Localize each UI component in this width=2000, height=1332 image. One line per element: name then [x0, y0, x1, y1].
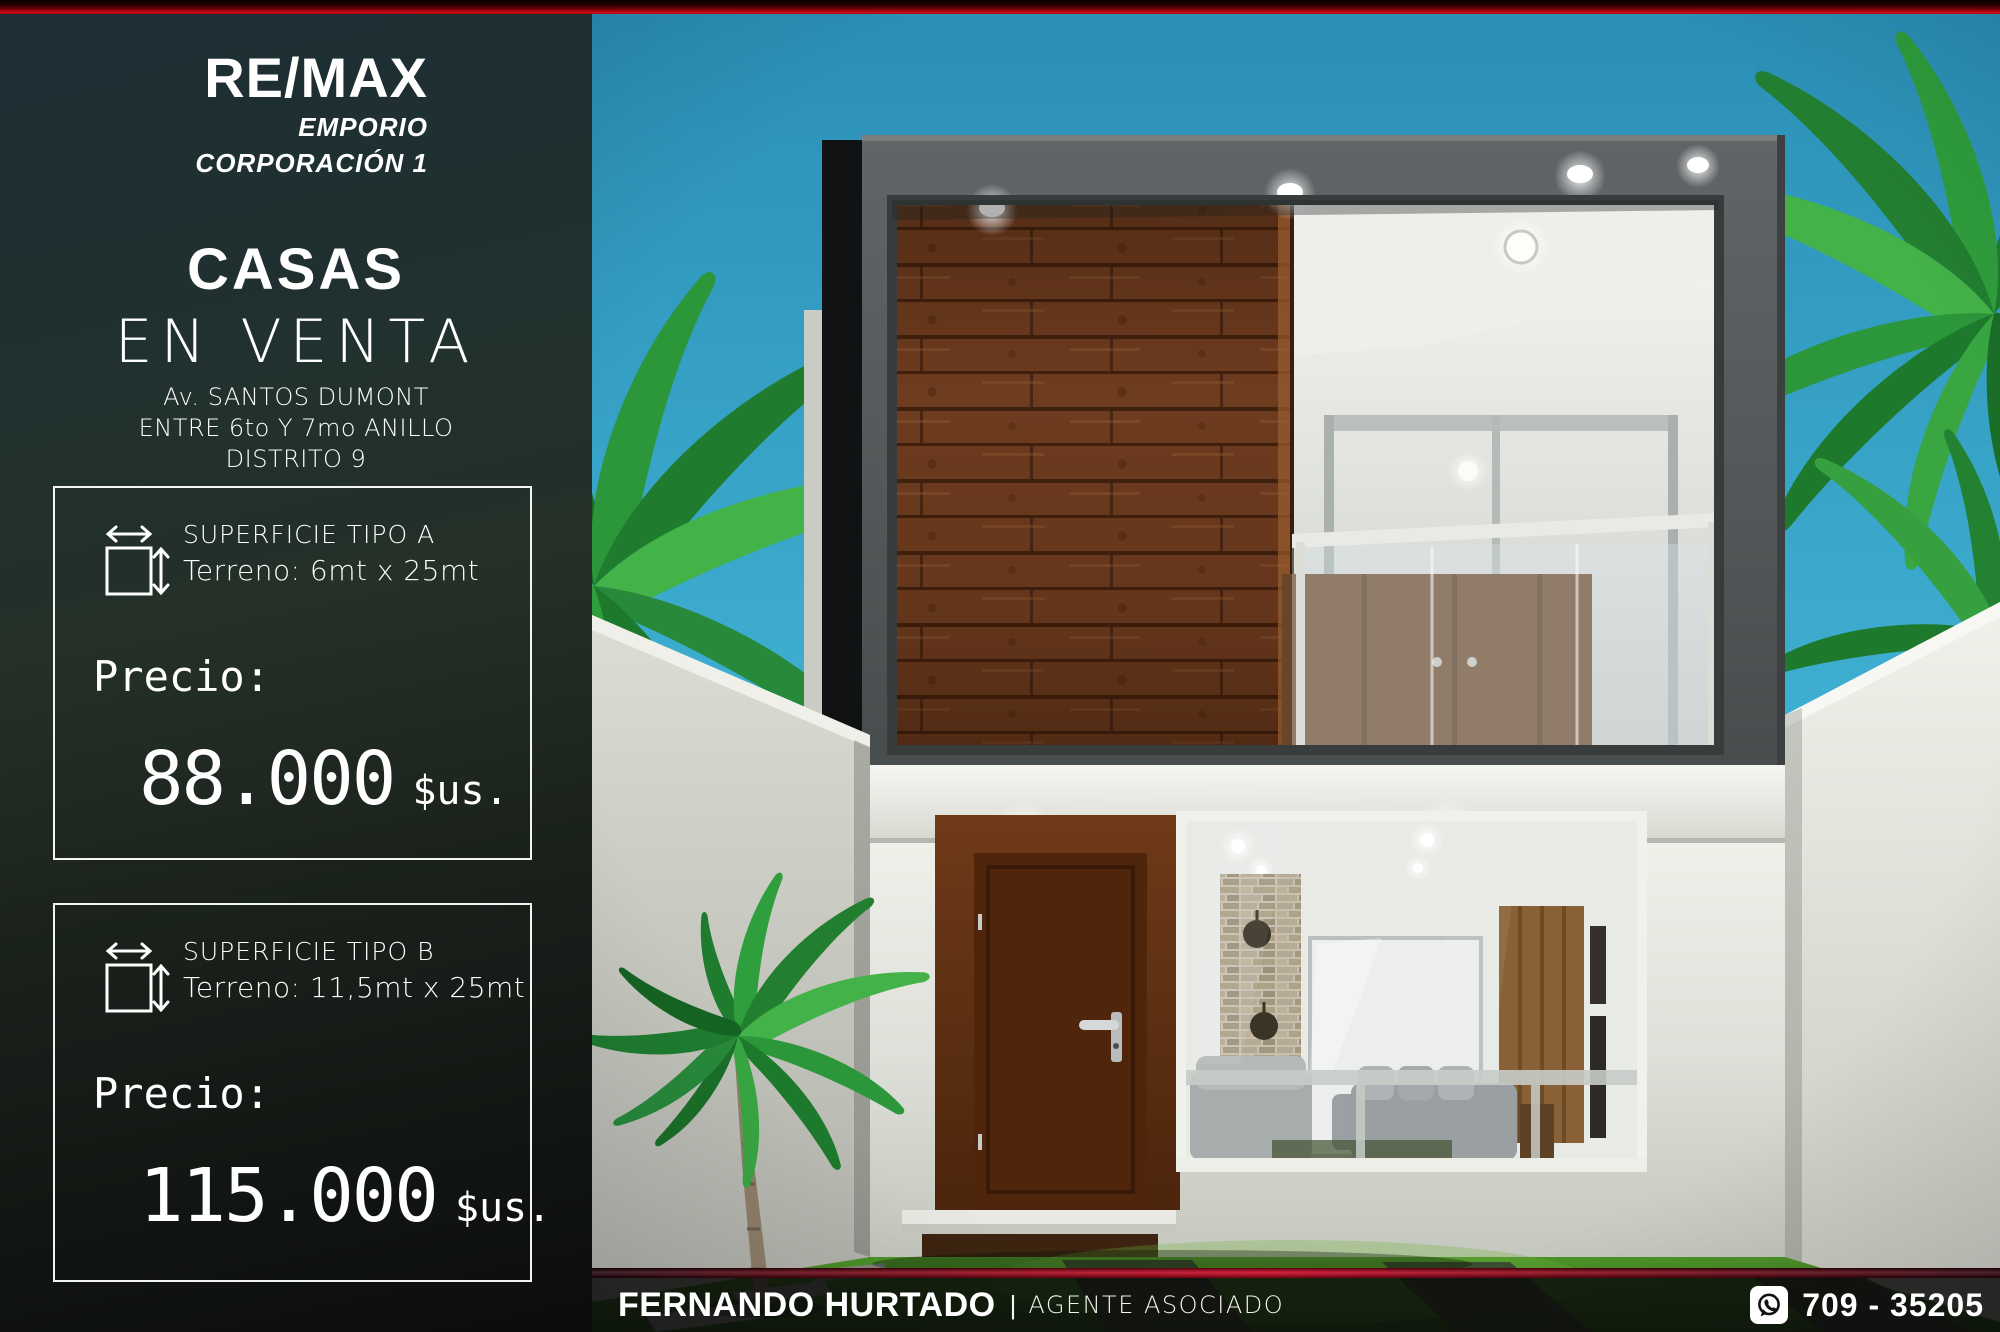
price-value: 115.000 — [139, 1153, 437, 1239]
address-line1: Av. SANTOS DUMONT — [0, 382, 592, 413]
vignette — [592, 14, 2000, 1332]
agent-separator: | — [1010, 1290, 1017, 1321]
terrain-size-label: Terreno: 6mt x 25mt — [183, 554, 479, 587]
price-line: 88.000 $us. — [139, 736, 509, 822]
remax-logo: RE/MAX EMPORIO CORPORACIÓN 1 — [0, 50, 428, 178]
remax-division-line2: CORPORACIÓN 1 — [0, 149, 428, 178]
address-line2: ENTRE 6to Y 7mo ANILLO — [0, 413, 592, 444]
agent-role: AGENTE ASOCIADO — [1028, 1291, 1284, 1319]
address-line3: DISTRITO 9 — [0, 444, 592, 475]
headline-casas: CASAS — [0, 236, 592, 303]
remax-division-line1: EMPORIO — [0, 113, 428, 142]
price-label: Precio: — [93, 652, 270, 701]
price-line: 115.000 $us. — [139, 1153, 551, 1239]
price-currency: $us. — [412, 768, 508, 814]
footer-main: FERNANDO HURTADO | AGENTE ASOCIADO 709 -… — [592, 1278, 2000, 1332]
headline: CASAS EN VENTA — [0, 236, 592, 377]
headline-en-venta: EN VENTA — [0, 307, 592, 377]
info-panel: RE/MAX EMPORIO CORPORACIÓN 1 CASAS EN VE… — [0, 14, 592, 1332]
property-address: Av. SANTOS DUMONT ENTRE 6to Y 7mo ANILLO… — [0, 382, 592, 476]
remax-logo-text: RE/MAX — [0, 50, 428, 106]
dimensions-icon — [101, 522, 175, 604]
house-photo — [592, 14, 2000, 1332]
offer-box-b: SUPERFICIE TIPO B Terreno: 11,5mt x 25mt… — [53, 903, 532, 1282]
phone-number: 709 - 35205 — [1802, 1287, 1984, 1324]
dimensions-icon — [101, 939, 175, 1021]
agent-name: FERNANDO HURTADO — [618, 1286, 996, 1325]
footer-bar: FERNANDO HURTADO | AGENTE ASOCIADO 709 -… — [592, 1268, 2000, 1332]
price-currency: $us. — [455, 1185, 551, 1231]
flyer: RE/MAX EMPORIO CORPORACIÓN 1 CASAS EN VE… — [0, 0, 2000, 1332]
price-value: 88.000 — [139, 736, 394, 822]
phone-contact: 709 - 35205 — [1750, 1286, 1984, 1324]
house-render — [592, 14, 2000, 1332]
surface-type-label: SUPERFICIE TIPO B — [183, 937, 434, 966]
surface-type-label: SUPERFICIE TIPO A — [183, 520, 435, 549]
price-label: Precio: — [93, 1069, 270, 1118]
top-red-bar — [0, 0, 2000, 14]
whatsapp-icon — [1750, 1286, 1788, 1324]
offer-box-a: SUPERFICIE TIPO A Terreno: 6mt x 25mt Pr… — [53, 486, 532, 860]
footer-red-stripe — [592, 1268, 2000, 1278]
terrain-size-label: Terreno: 11,5mt x 25mt — [183, 971, 525, 1004]
